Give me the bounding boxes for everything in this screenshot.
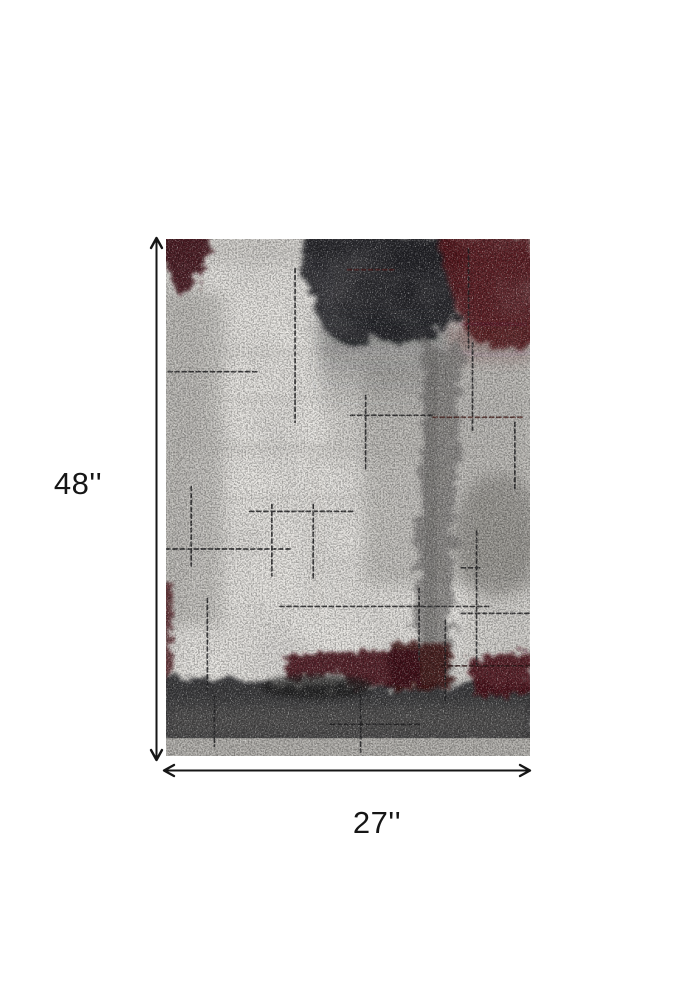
width-dimension-arrow [160,760,534,782]
rug-artwork [166,239,530,756]
height-dimension-label: 48'' [38,467,118,501]
product-dimension-image: 48'' 27'' [0,0,697,1000]
width-dimension-label: 27'' [335,806,419,840]
rug-image [166,239,530,756]
height-dimension-arrow [146,234,168,764]
rug-light-grain [166,239,530,756]
